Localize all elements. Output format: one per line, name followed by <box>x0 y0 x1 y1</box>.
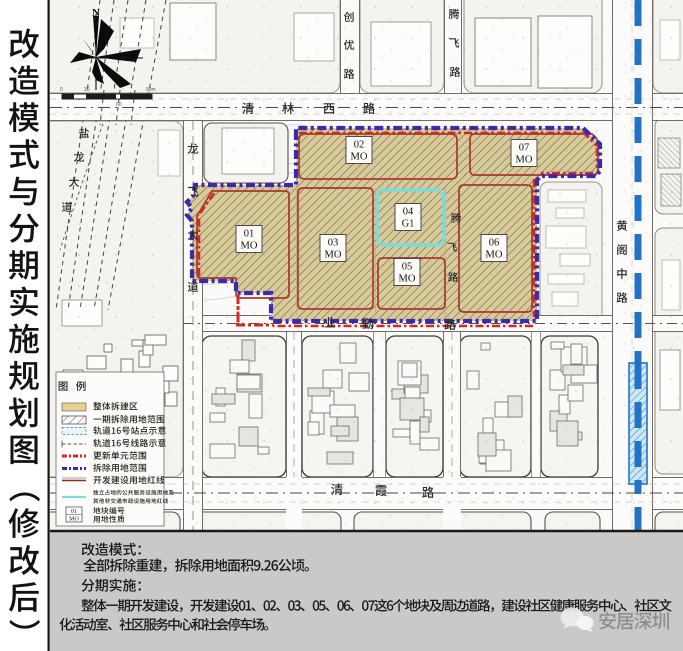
svg-text:MO: MO <box>69 517 79 523</box>
svg-text:01: 01 <box>71 509 77 515</box>
